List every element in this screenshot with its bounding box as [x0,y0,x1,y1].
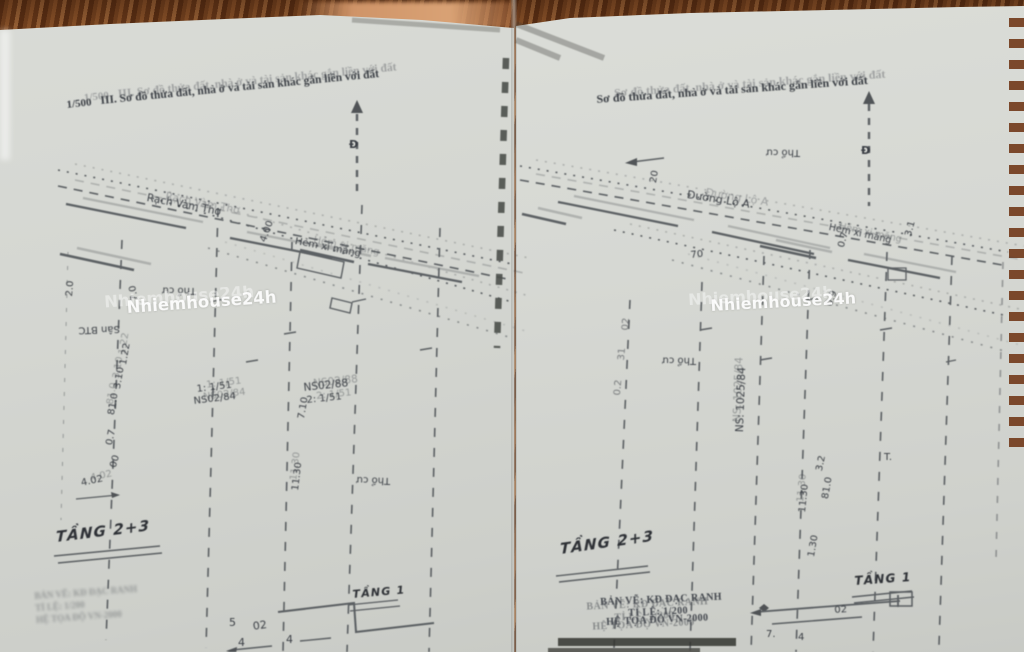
right-bottom-dimension-line [756,595,900,612]
photographed-survey-document: 1/500 III. Sơ đồ thửa đất, nhà ở và tài … [0,0,1024,652]
left-tang23-underline [54,546,162,563]
land-use-label: T. [884,452,892,463]
north-label: Đ [349,138,358,151]
dim-label: 0.2 [612,379,624,396]
left-bold-edge-dashes [497,58,506,348]
dim-label: 02 [834,604,847,616]
dim-label: 7. [766,629,776,640]
dim-label: 31 [616,347,628,361]
dim-label: 4 [286,633,293,646]
land-use-label: Thổ cư [662,354,696,366]
right-boundary-dashed [939,256,952,645]
blurred-text-bar [558,638,736,646]
dim-label: 70 [690,249,704,261]
left-boundary-dashed [283,242,292,652]
left-tang1-underline [348,600,400,611]
right-tang1-underline [852,591,914,603]
dim-label: 4 [798,632,804,643]
blurred-text-bar [548,648,700,652]
plot-id: NS: 1025/84 [734,367,748,432]
paper-crease-shadow [352,20,500,30]
dim-label: 5 [229,616,236,629]
left-boundary-dashed [347,205,362,652]
yard-label: Sân BTC [78,323,120,335]
left-boundary-dashed [429,228,440,652]
land-use-label: Thổ cư [356,474,390,486]
right-tang23-underline [556,566,650,582]
north-label: Đ [861,144,870,157]
land-use-label: Thổ cư [766,146,800,158]
paper-crease-shadow [516,24,604,58]
left-boundary-dashed [206,208,218,648]
dim-label: 02 [620,317,632,331]
dim-label: 02 [252,618,268,633]
left-bottom-dimension-line [278,603,434,632]
right-boundary-dashed [751,256,764,652]
dim-label: 2.0 [64,280,76,297]
dim-label: 20 [648,169,661,183]
caption-block-faint: BẢN VẼ: KĐ ĐẠC RANH TỈ LỆ: 1/200 HỆ TỌA … [34,583,139,626]
dim-label: 4 [238,636,245,649]
